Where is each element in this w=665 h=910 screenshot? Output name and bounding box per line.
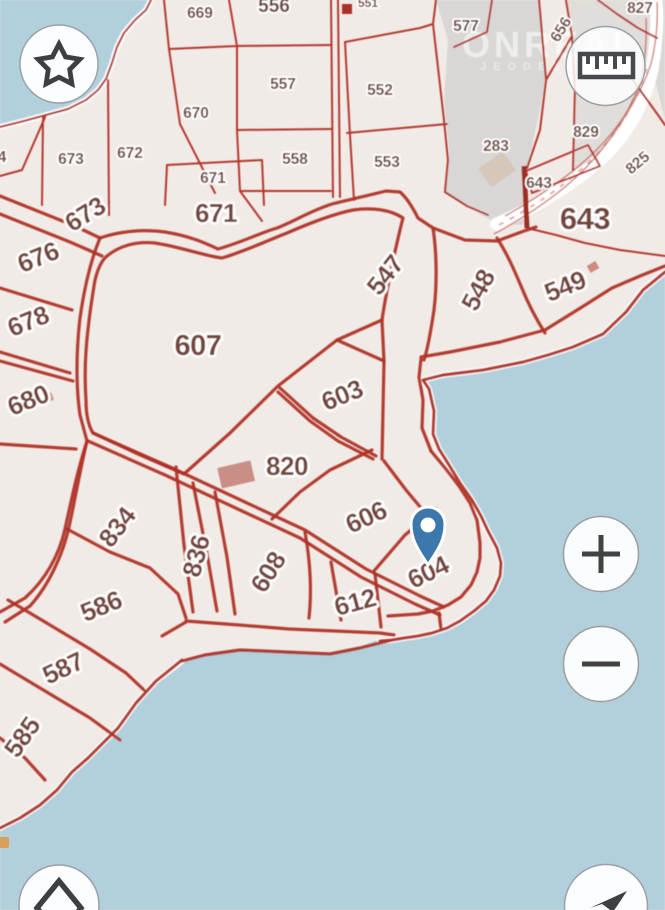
svg-text:672: 672 <box>117 145 143 162</box>
svg-text:283: 283 <box>483 138 509 155</box>
svg-text:671: 671 <box>195 198 237 228</box>
svg-text:673: 673 <box>58 151 84 168</box>
svg-text:4: 4 <box>0 149 7 166</box>
svg-text:607: 607 <box>175 330 222 362</box>
svg-text:557: 557 <box>270 76 296 93</box>
svg-text:670: 670 <box>183 105 209 122</box>
svg-text:669: 669 <box>187 5 213 22</box>
svg-text:820: 820 <box>266 451 308 481</box>
svg-text:558: 558 <box>282 151 308 168</box>
svg-text:643: 643 <box>526 175 552 192</box>
svg-text:JEODEZI: JEODEZI <box>480 61 576 73</box>
svg-text:671: 671 <box>200 170 226 187</box>
svg-text:643: 643 <box>560 201 610 236</box>
svg-text:829: 829 <box>573 124 599 141</box>
svg-text:556: 556 <box>258 0 290 17</box>
svg-text:577: 577 <box>453 18 479 35</box>
svg-text:827: 827 <box>627 0 653 17</box>
svg-text:551: 551 <box>358 0 378 10</box>
svg-text:552: 552 <box>367 82 393 99</box>
svg-text:553: 553 <box>374 154 400 171</box>
